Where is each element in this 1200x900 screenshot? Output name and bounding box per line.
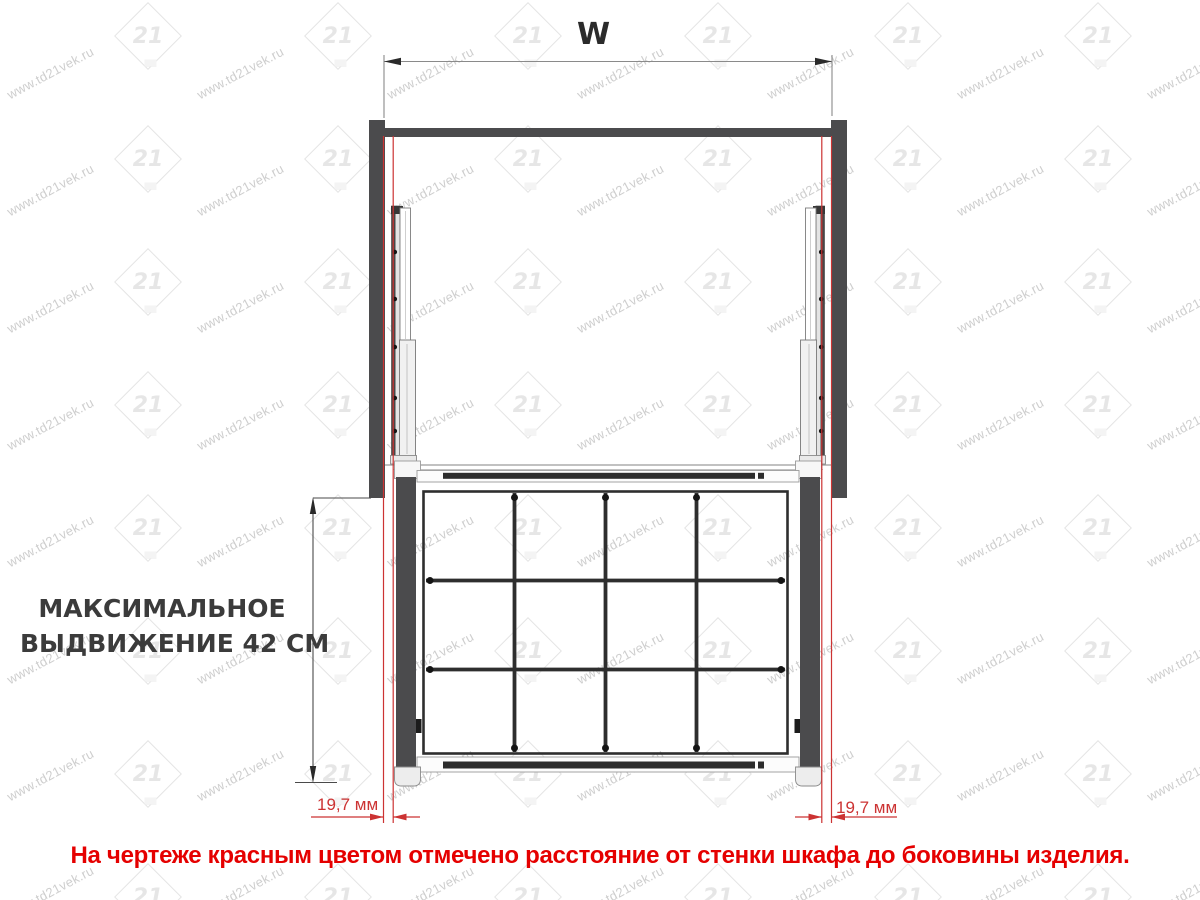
left-gap-dimension-label: 19,7 мм [317, 795, 378, 815]
product-drawing-page: www.td21vek.ru21www.td21vek.ru21www.td21… [0, 0, 1200, 900]
extension-arrow-down [310, 766, 316, 783]
width-extension-lines [384, 55, 832, 118]
technical-drawing [0, 0, 1200, 900]
width-dimension [384, 55, 832, 118]
gap-arrow-right-b [809, 814, 822, 821]
left-slide-rail [391, 206, 417, 464]
basket-side-panel-left [396, 477, 416, 768]
basket-foot-right [796, 767, 822, 786]
basket-top-bar [443, 473, 755, 479]
basket-wire-grid [424, 492, 788, 754]
cabinet-wall-right [831, 120, 847, 498]
rail-bracket-strip [821, 206, 825, 464]
extension-arrow-up [310, 497, 316, 514]
grid-vertical-wires [515, 493, 697, 752]
cabinet-carcass [369, 120, 847, 498]
pullout-basket [395, 461, 822, 786]
right-gap-dimension-label: 19,7 мм [836, 798, 897, 818]
cabinet-wall-left [369, 120, 385, 498]
max-extension-label: МАКСИМАЛЬНОЕ ВЫДВИЖЕНИЕ 42 СМ [20, 591, 304, 661]
cabinet-top-panel [372, 128, 844, 137]
basket-bottom-bar-end [758, 762, 764, 769]
basket-panel-clip-right [795, 719, 801, 733]
basket-top-bar-end [758, 473, 764, 479]
basket-panel-clip-left [416, 719, 422, 733]
red-note-text: На чертеже красным цветом отмечено расст… [0, 842, 1200, 870]
basket-bottom-bar [443, 762, 755, 769]
max-extension-line2: ВЫДВИЖЕНИЕ 42 СМ [20, 626, 304, 661]
width-dimension-label: W [577, 17, 610, 52]
basket-side-panel-right [800, 477, 820, 768]
basket-foot-left [395, 767, 421, 786]
max-extension-line1: МАКСИМАЛЬНОЕ [20, 591, 304, 626]
width-arrow-left [384, 58, 401, 65]
width-arrow-right [815, 58, 832, 65]
gap-arrow-left-b [393, 814, 406, 821]
